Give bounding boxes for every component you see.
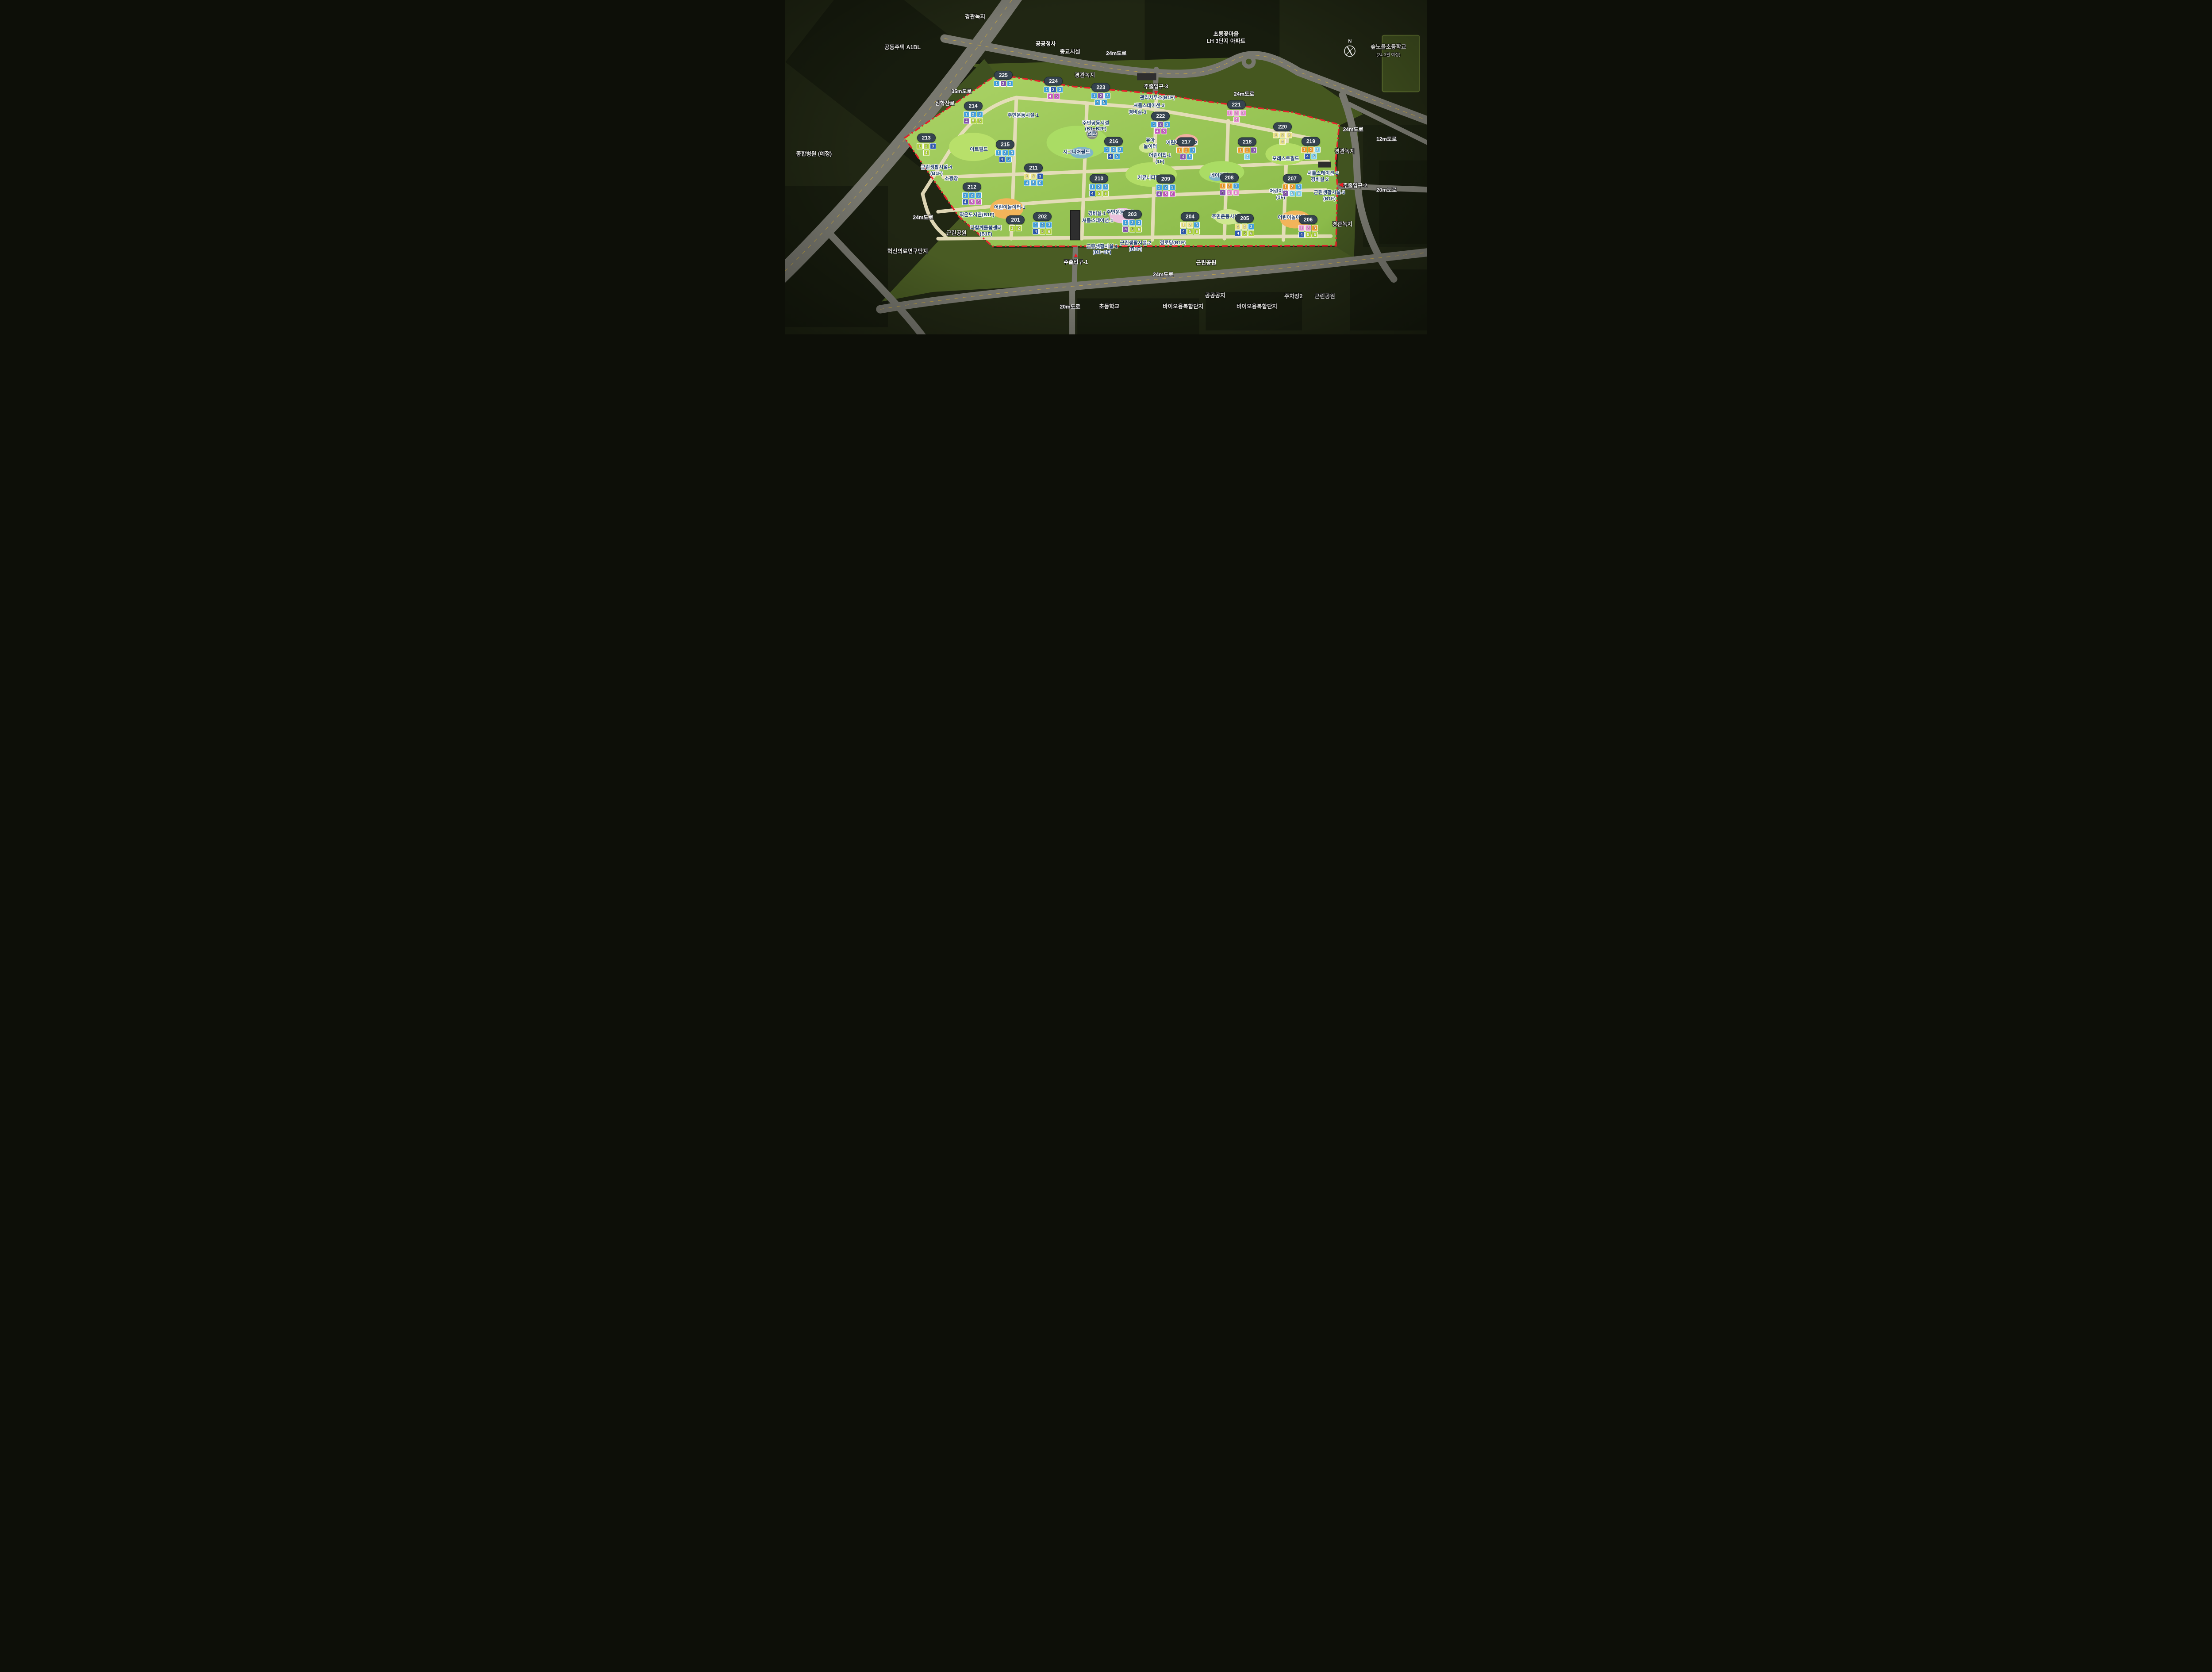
- unit-chip: 1: [1273, 132, 1279, 138]
- building-222: 22212345: [1149, 112, 1172, 134]
- unit-chip: 3: [977, 111, 983, 118]
- building-badge: 225: [994, 71, 1013, 80]
- unit-chip: 4: [1220, 190, 1226, 196]
- building-unit-chips: 123456: [1218, 183, 1241, 196]
- unit-chip: 5: [1187, 154, 1193, 160]
- building-201: 20112: [1004, 215, 1027, 231]
- unit-chip: 3: [1248, 223, 1254, 230]
- building-212: 212123456: [960, 183, 983, 205]
- building-unit-chips: 123456: [962, 111, 985, 124]
- unit-chip: 2: [1129, 219, 1135, 226]
- building-223: 22312345: [1089, 83, 1112, 106]
- entrance-arrow-icon: ▲: [1073, 251, 1079, 258]
- facility-label: 소광장: [945, 176, 958, 182]
- unit-chip: 3: [1057, 86, 1063, 92]
- area-label: 공동주택 A1BL: [884, 44, 921, 51]
- building-214: 214123456: [962, 102, 985, 124]
- building-206: 206123456: [1297, 215, 1320, 238]
- unit-chip: 3: [1102, 184, 1109, 190]
- road-label: 24m도로: [1234, 90, 1254, 97]
- unit-chip: 2: [1098, 93, 1104, 99]
- road-label: 35m도로: [951, 87, 972, 95]
- area-label: 혁신의료연구단지: [887, 248, 928, 255]
- building-badge: 222: [1151, 112, 1170, 121]
- unit-chip: 2: [1244, 147, 1250, 153]
- building-unit-chips: 12345: [994, 150, 1017, 162]
- unit-chip: 6: [1169, 191, 1175, 197]
- building-badge: 224: [1044, 77, 1063, 85]
- building-unit-chips: 1234: [1225, 110, 1248, 123]
- road-label: 심학산로: [935, 99, 955, 107]
- unit-chip: 2: [1096, 184, 1102, 190]
- unit-chip: 5: [1039, 228, 1045, 234]
- building-badge: 212: [963, 183, 981, 192]
- facility-label: 근린생활시설-2 (B1F): [1120, 240, 1151, 253]
- unit-chip: 4: [1180, 154, 1186, 160]
- building-badge: 220: [1273, 123, 1292, 131]
- unit-chip: 3: [1286, 132, 1292, 138]
- area-label: 경관녹지: [965, 13, 985, 20]
- unit-chip: 2: [969, 192, 975, 199]
- area-label: 주차장2: [1284, 292, 1302, 299]
- building-208: 208123456: [1218, 173, 1241, 196]
- unit-chip: 5: [1305, 232, 1311, 238]
- unit-chip: 2: [1241, 223, 1248, 230]
- area-label: 종교시설: [1060, 48, 1080, 55]
- unit-chip: 1: [1298, 225, 1305, 231]
- building-unit-chips: 12345: [1299, 146, 1322, 159]
- building-211: 211123456: [1022, 164, 1045, 186]
- area-label: (24.3월 예정): [1377, 53, 1401, 58]
- road-label: 20m도로: [1060, 303, 1080, 311]
- unit-chip: 5: [1129, 226, 1135, 232]
- building-unit-chips: 123456: [1297, 225, 1320, 238]
- area-label: 종합병원 (예정): [796, 150, 832, 157]
- unit-chip: 4: [1107, 153, 1114, 159]
- building-badge: 214: [964, 102, 983, 111]
- building-badge: 206: [1299, 215, 1317, 224]
- unit-chip: 6: [1037, 180, 1043, 186]
- facility-label: 셔틀스테이션-3: [1133, 103, 1165, 109]
- unit-chip: 5: [969, 199, 975, 205]
- unit-chip: 1: [1176, 147, 1183, 153]
- building-badge: 203: [1123, 210, 1141, 219]
- unit-chip: 1: [1089, 184, 1095, 190]
- building-unit-chips: 123456: [1087, 184, 1110, 196]
- building-204: 204123456: [1179, 212, 1202, 234]
- unit-chip: 2: [1039, 222, 1045, 228]
- facility-label: 시그니처필드: [1063, 150, 1090, 156]
- unit-chip: 4: [1233, 117, 1240, 123]
- site-plan-map: 주민운동시설-1주민공동시설 (B1~B2F)관리사무소(B1F)셔틀스테이션-…: [785, 0, 1427, 334]
- building-221: 2211234: [1225, 100, 1248, 123]
- unit-chip: 4: [1154, 128, 1160, 134]
- facility-label: 근린생활시설-1 (B1~2F): [1087, 244, 1118, 256]
- unit-chip: 3: [975, 192, 982, 199]
- area-label: 숲노을초등학교: [1371, 43, 1406, 50]
- building-unit-chips: 12345: [1089, 93, 1112, 106]
- building-unit-chips: 123456: [1233, 223, 1256, 236]
- unit-chip: 2: [1016, 225, 1022, 231]
- area-label: 초등학교: [1099, 303, 1119, 310]
- building-badge: 211: [1024, 164, 1042, 173]
- building-209: 209123456: [1154, 175, 1177, 197]
- building-unit-chips: 123456: [1121, 219, 1144, 232]
- unit-chip: 4: [964, 118, 970, 124]
- road-label: 24m도로: [1343, 125, 1363, 133]
- building-badge: 218: [1238, 138, 1256, 146]
- unit-chip: 4: [1180, 228, 1187, 234]
- building-217: 21712345: [1175, 138, 1198, 160]
- area-label: 경관녹지: [1332, 221, 1352, 228]
- unit-chip: 2: [1289, 184, 1295, 190]
- building-213: 2131234: [915, 134, 938, 156]
- unit-chip: 3: [1136, 219, 1142, 226]
- unit-chip: 4: [962, 199, 968, 205]
- building-badge: 210: [1090, 174, 1108, 183]
- compass-north-label: N: [1348, 38, 1352, 44]
- facility-label: 주민운동시설-1: [1008, 113, 1039, 119]
- entrance-arrow-icon: ◀: [1339, 181, 1344, 188]
- building-badge: 215: [996, 140, 1014, 149]
- unit-chip: 1: [1180, 222, 1187, 228]
- unit-chip: 3: [1007, 81, 1013, 87]
- unit-chip: 1: [994, 81, 1000, 87]
- unit-chip: 6: [1248, 230, 1254, 236]
- facility-label: 유아 놀이터: [1144, 138, 1157, 150]
- unit-chip: 3: [1104, 93, 1110, 99]
- building-203: 203123456: [1121, 210, 1144, 232]
- building-216: 21612345: [1102, 137, 1125, 159]
- unit-chip: 3: [1240, 110, 1246, 116]
- unit-chip: 6: [975, 199, 982, 205]
- area-label: 근린공원: [1315, 292, 1335, 299]
- unit-chip: 1: [1044, 86, 1050, 92]
- area-label: 바이오융복합단지: [1163, 303, 1203, 310]
- unit-chip: 5: [1289, 190, 1295, 196]
- unit-chip: 6: [1296, 190, 1302, 196]
- facility-label: 어린이놀이터-1: [994, 205, 1025, 211]
- unit-chip: 5: [970, 118, 976, 124]
- unit-chip: 5: [1187, 228, 1193, 234]
- building-badge: 219: [1302, 137, 1320, 146]
- unit-chip: 5: [1054, 93, 1060, 99]
- building-224: 22412345: [1042, 77, 1065, 99]
- unit-chip: 1: [1104, 146, 1110, 153]
- facility-label: 셔틀스테이션-2: [1307, 171, 1339, 177]
- building-unit-chips: 1234: [1271, 132, 1294, 145]
- unit-chip: 4: [1156, 191, 1162, 197]
- road-label: 24m도로: [1153, 270, 1173, 278]
- unit-chip: 2: [970, 111, 976, 118]
- unit-chip: 3: [1190, 147, 1196, 153]
- unit-chip: 1: [1122, 219, 1129, 226]
- road-label: 12m도로: [1376, 135, 1397, 142]
- facility-label: 근린생활시설-3 (B1F): [1314, 190, 1345, 202]
- unit-chip: 1: [1156, 184, 1162, 191]
- unit-chip: 4: [999, 156, 1005, 162]
- unit-chip: 3: [1194, 222, 1200, 228]
- unit-chip: 6: [1312, 232, 1318, 238]
- building-unit-chips: 123456: [1179, 222, 1202, 234]
- unit-chip: 2: [1030, 173, 1037, 180]
- unit-chip: 5: [1030, 180, 1037, 186]
- building-unit-chips: 12345: [1042, 86, 1065, 99]
- unit-chip: 2: [1157, 122, 1164, 128]
- unit-chip: 5: [1006, 156, 1012, 162]
- unit-chip: 4: [1244, 154, 1250, 160]
- facility-label: 근린생활시설-4 (B1F): [921, 165, 952, 177]
- unit-chip: 4: [1304, 153, 1310, 159]
- compass-icon: N: [1343, 38, 1356, 58]
- building-225: 225123: [992, 71, 1015, 87]
- entrance-label: 주출입구-2: [1343, 181, 1367, 189]
- facility-label: 경로당(B1F): [1160, 240, 1186, 246]
- unit-chip: 5: [1163, 191, 1169, 197]
- unit-chip: 1: [1301, 146, 1307, 153]
- compass-rose: [1343, 44, 1356, 58]
- building-badge: 207: [1283, 174, 1302, 183]
- facility-label: 선큰: [1087, 131, 1096, 138]
- building-badge: 209: [1156, 175, 1175, 184]
- building-badge: 213: [917, 134, 936, 142]
- unit-chip: 5: [1114, 153, 1120, 159]
- unit-chip: 6: [1136, 226, 1142, 232]
- facility-label: 셔틀스테이션-1: [1082, 218, 1114, 224]
- unit-chip: 2: [1308, 146, 1314, 153]
- unit-chip: 2: [1233, 110, 1240, 116]
- unit-chip: 1: [1024, 173, 1030, 180]
- building-unit-chips: 12345: [1149, 122, 1172, 134]
- unit-chip: 1: [962, 192, 968, 199]
- unit-chip: 3: [1312, 225, 1318, 231]
- unit-chip: 1: [1091, 93, 1097, 99]
- area-label: 근린공원: [1196, 259, 1216, 266]
- building-215: 21512345: [994, 140, 1017, 162]
- building-badge: 221: [1227, 100, 1246, 109]
- unit-chip: 5: [1101, 100, 1107, 106]
- unit-chip: 1: [964, 111, 970, 118]
- building-unit-chips: 12345: [1175, 147, 1198, 160]
- building-218: 2181234: [1236, 138, 1259, 160]
- area-label: 경관녹지: [1075, 72, 1095, 79]
- unit-chip: 1: [1227, 110, 1233, 116]
- unit-chip: 1: [1235, 223, 1241, 230]
- unit-chip: 5: [1161, 128, 1167, 134]
- unit-chip: 2: [1163, 184, 1169, 191]
- building-unit-chips: 1234: [1236, 147, 1259, 160]
- building-badge: 208: [1220, 173, 1239, 182]
- building-badge: 204: [1181, 212, 1199, 221]
- unit-chip: 1: [1283, 184, 1289, 190]
- unit-chip: 6: [1102, 190, 1109, 196]
- building-badge: 223: [1091, 83, 1110, 92]
- facility-label: 다함께돌봄센터 (B1F): [970, 225, 1002, 238]
- area-label: 근린공원: [946, 230, 967, 237]
- unit-chip: 4: [1047, 93, 1053, 99]
- unit-chip: 1: [1220, 183, 1226, 189]
- building-unit-chips: 12345: [1102, 146, 1125, 159]
- unit-chip: 4: [1033, 228, 1039, 234]
- unit-chip: 3: [1251, 147, 1257, 153]
- unit-chip: 3: [1164, 122, 1170, 128]
- building-badge: 201: [1006, 215, 1025, 224]
- unit-chip: 2: [1050, 86, 1056, 92]
- unit-chip: 1: [1033, 222, 1039, 228]
- unit-chip: 5: [1311, 153, 1317, 159]
- building-unit-chips: 1234: [915, 143, 938, 156]
- unit-chip: 3: [1314, 146, 1321, 153]
- unit-chip: 4: [1024, 180, 1030, 186]
- unit-chip: 2: [1305, 225, 1311, 231]
- unit-chip: 4: [1235, 230, 1241, 236]
- unit-chip: 4: [1283, 190, 1289, 196]
- unit-chip: 2: [1002, 150, 1008, 156]
- unit-chip: 3: [1296, 184, 1302, 190]
- unit-chip: 3: [1169, 184, 1175, 191]
- building-unit-chips: 123456: [1154, 184, 1177, 197]
- unit-chip: 3: [930, 143, 936, 150]
- unit-chip: 3: [1117, 146, 1123, 153]
- facility-label: 작은도서관(B1F): [960, 213, 995, 219]
- building-205: 205123456: [1233, 214, 1256, 236]
- unit-chip: 5: [1096, 190, 1102, 196]
- area-label: 초롱꽃마을 LH 3단지 아파트: [1206, 30, 1245, 45]
- road-label: 20m도로: [1376, 186, 1397, 193]
- unit-chip: 5: [1241, 230, 1248, 236]
- facility-label: 경비실-3: [1129, 110, 1146, 116]
- unit-chip: 6: [1046, 228, 1052, 234]
- unit-chip: 2: [1279, 132, 1286, 138]
- unit-chip: 1: [995, 150, 1002, 156]
- building-219: 21912345: [1299, 137, 1322, 159]
- road-label: 24m도로: [1106, 50, 1126, 57]
- area-label: 공공공지: [1205, 292, 1225, 299]
- unit-chip: 4: [1094, 100, 1101, 106]
- facility-label: 포레스트필드: [1272, 156, 1299, 162]
- building-unit-chips: 123456: [1281, 184, 1304, 196]
- unit-chip: 4: [923, 150, 929, 156]
- area-label: 바이오융복합단지: [1237, 303, 1277, 310]
- unit-chip: 4: [1279, 139, 1286, 145]
- unit-chip: 1: [1151, 122, 1157, 128]
- building-unit-chips: 12: [1004, 225, 1027, 231]
- unit-chip: 2: [1187, 222, 1193, 228]
- unit-chip: 3: [1037, 173, 1043, 180]
- road-label: 24m도로: [913, 213, 933, 221]
- unit-chip: 1: [917, 143, 923, 150]
- unit-chip: 2: [1110, 146, 1117, 153]
- building-unit-chips: 123456: [960, 192, 983, 205]
- facility-label: 어린이집-1 (1F): [1149, 153, 1171, 165]
- unit-chip: 2: [1226, 183, 1233, 189]
- unit-chip: 4: [1298, 232, 1305, 238]
- unit-chip: 4: [1089, 190, 1095, 196]
- unit-chip: 3: [1046, 222, 1052, 228]
- unit-chip: 2: [1183, 147, 1189, 153]
- unit-chip: 4: [1122, 226, 1129, 232]
- unit-chip: 3: [1233, 183, 1239, 189]
- unit-chip: 3: [1009, 150, 1015, 156]
- building-badge: 217: [1177, 138, 1195, 146]
- unit-chip: 1: [1237, 147, 1244, 153]
- building-207: 207123456: [1281, 174, 1304, 196]
- building-badge: 216: [1104, 137, 1123, 146]
- building-202: 202123456: [1031, 212, 1054, 234]
- building-210: 210123456: [1087, 174, 1110, 196]
- unit-chip: 5: [1226, 190, 1233, 196]
- unit-chip: 6: [977, 118, 983, 124]
- facility-label: 관리사무소(B1F): [1140, 95, 1175, 101]
- building-unit-chips: 123456: [1022, 173, 1045, 186]
- unit-chip: 2: [1000, 81, 1006, 87]
- facility-label: 경비실-2: [1311, 177, 1329, 183]
- facility-label: 경비실-1: [1088, 211, 1106, 217]
- unit-chip: 2: [923, 143, 929, 150]
- entrance-label: 주출입구-1: [1064, 258, 1088, 265]
- building-220: 2201234: [1271, 123, 1294, 145]
- building-unit-chips: 123: [992, 81, 1015, 87]
- unit-chip: 6: [1233, 190, 1239, 196]
- facility-label: 주민공동시설 (B1~B2F): [1082, 120, 1109, 133]
- entrance-arrow-icon: ▼: [1153, 89, 1159, 96]
- building-badge: 205: [1235, 214, 1254, 222]
- unit-chip: 1: [1009, 225, 1015, 231]
- building-badge: 202: [1033, 212, 1052, 221]
- building-unit-chips: 123456: [1031, 222, 1054, 234]
- area-label: 경관녹지: [1335, 147, 1355, 154]
- area-label: 공공청사: [1036, 40, 1056, 47]
- unit-chip: 6: [1194, 228, 1200, 234]
- facility-label: 아트필드: [970, 147, 987, 153]
